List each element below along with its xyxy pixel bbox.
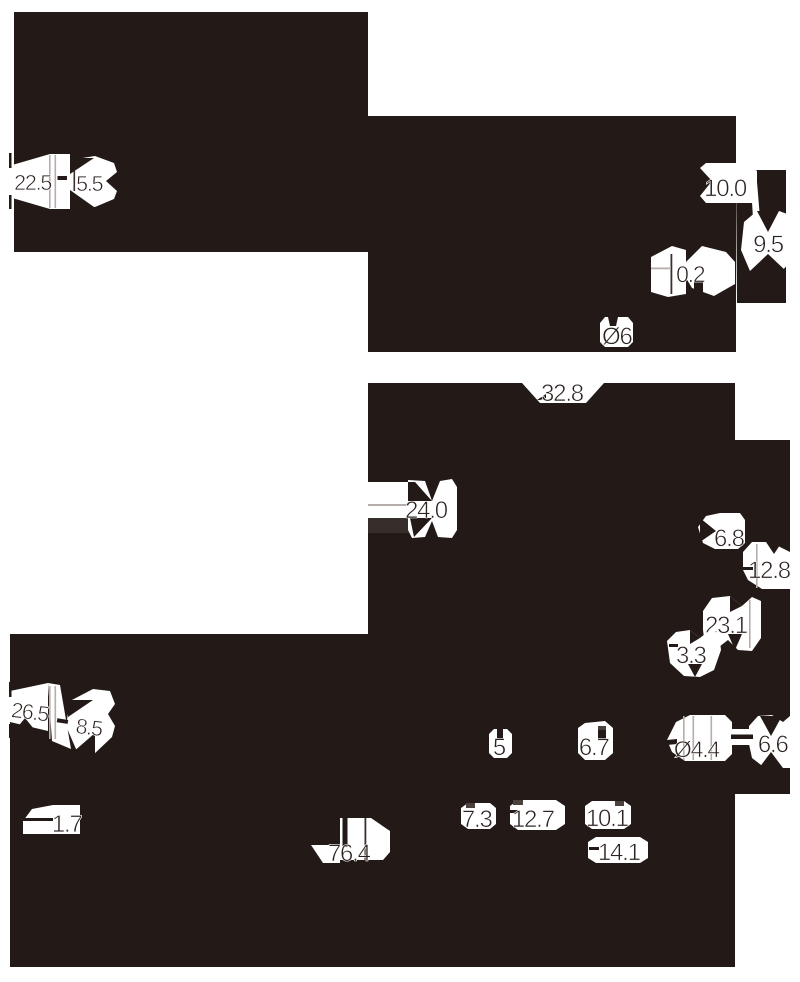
svg-text:5.5: 5.5 (76, 172, 104, 196)
svg-text:76.4: 76.4 (328, 840, 371, 867)
svg-text:10.0: 10.0 (704, 175, 747, 202)
svg-text:Ø6: Ø6 (602, 323, 632, 350)
svg-text:22.5: 22.5 (14, 171, 52, 195)
svg-text:12.8: 12.8 (748, 557, 791, 584)
svg-text:6.8: 6.8 (714, 525, 745, 552)
svg-text:1.7: 1.7 (52, 811, 83, 838)
svg-text:6.6: 6.6 (758, 731, 789, 758)
svg-text:12.7: 12.7 (512, 806, 555, 833)
svg-text:26.5: 26.5 (10, 698, 51, 726)
svg-text:32.8: 32.8 (541, 380, 584, 407)
svg-text:8.5: 8.5 (74, 714, 104, 741)
svg-text:14.1: 14.1 (598, 839, 641, 866)
svg-text:10.1: 10.1 (586, 805, 629, 832)
svg-text:3.3: 3.3 (676, 642, 707, 669)
svg-text:9.5: 9.5 (753, 231, 784, 258)
svg-text:0.2: 0.2 (676, 261, 705, 287)
svg-text:6.7: 6.7 (579, 734, 610, 761)
svg-text:7.3: 7.3 (462, 806, 493, 833)
svg-text:24.0: 24.0 (405, 497, 448, 524)
svg-text:5: 5 (493, 734, 506, 761)
svg-text:Ø4.4: Ø4.4 (674, 736, 720, 762)
